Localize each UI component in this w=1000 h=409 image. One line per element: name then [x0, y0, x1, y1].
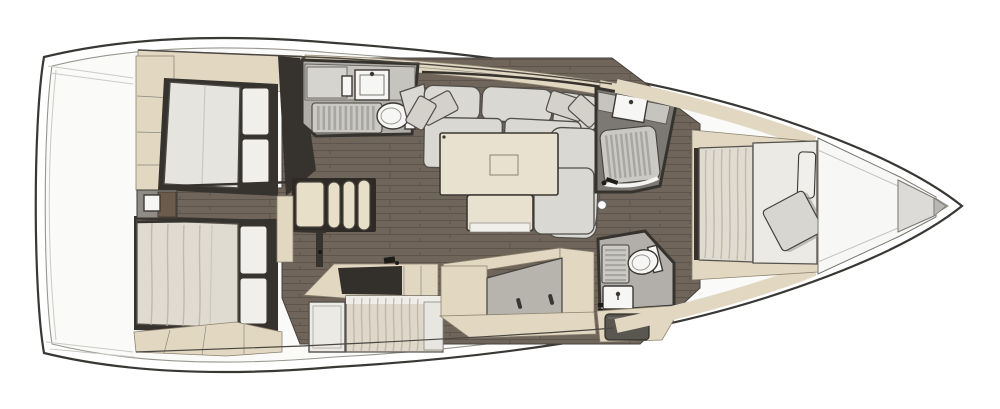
step	[328, 182, 340, 228]
step	[358, 180, 370, 230]
storage-box	[144, 195, 160, 211]
aft-head	[302, 60, 418, 136]
midline-storage-niche	[137, 190, 177, 218]
cabinet-side	[277, 196, 293, 262]
companionway-steps	[292, 178, 376, 232]
island-double-bed	[699, 141, 828, 264]
salon-table	[440, 133, 558, 195]
settee-right	[560, 248, 594, 314]
aft-cabin-starboard	[134, 216, 282, 356]
pillow	[242, 139, 269, 184]
locker-lid	[307, 67, 347, 98]
sink	[603, 286, 633, 309]
floor-plan-drawing	[0, 0, 1000, 409]
shower-grate	[602, 245, 629, 283]
shower-grate	[599, 125, 660, 185]
pillow	[240, 226, 267, 274]
step	[343, 181, 355, 229]
double-bed	[137, 220, 267, 328]
aft-cabin-port	[136, 50, 316, 196]
starboard-settee	[440, 248, 596, 338]
table-bench	[467, 195, 533, 232]
double-bed	[164, 82, 269, 188]
step	[296, 182, 324, 227]
shower-grate	[312, 103, 382, 133]
bench-end-panel	[424, 302, 443, 350]
yacht-floor-plan	[0, 0, 1000, 409]
pillow	[242, 88, 269, 135]
sink	[355, 70, 389, 100]
soap-holder	[342, 76, 352, 96]
mast-post	[598, 201, 607, 210]
galley-end-panel	[316, 233, 323, 267]
cooktop	[338, 266, 402, 295]
settee-left	[441, 266, 487, 316]
pillow	[240, 278, 267, 324]
